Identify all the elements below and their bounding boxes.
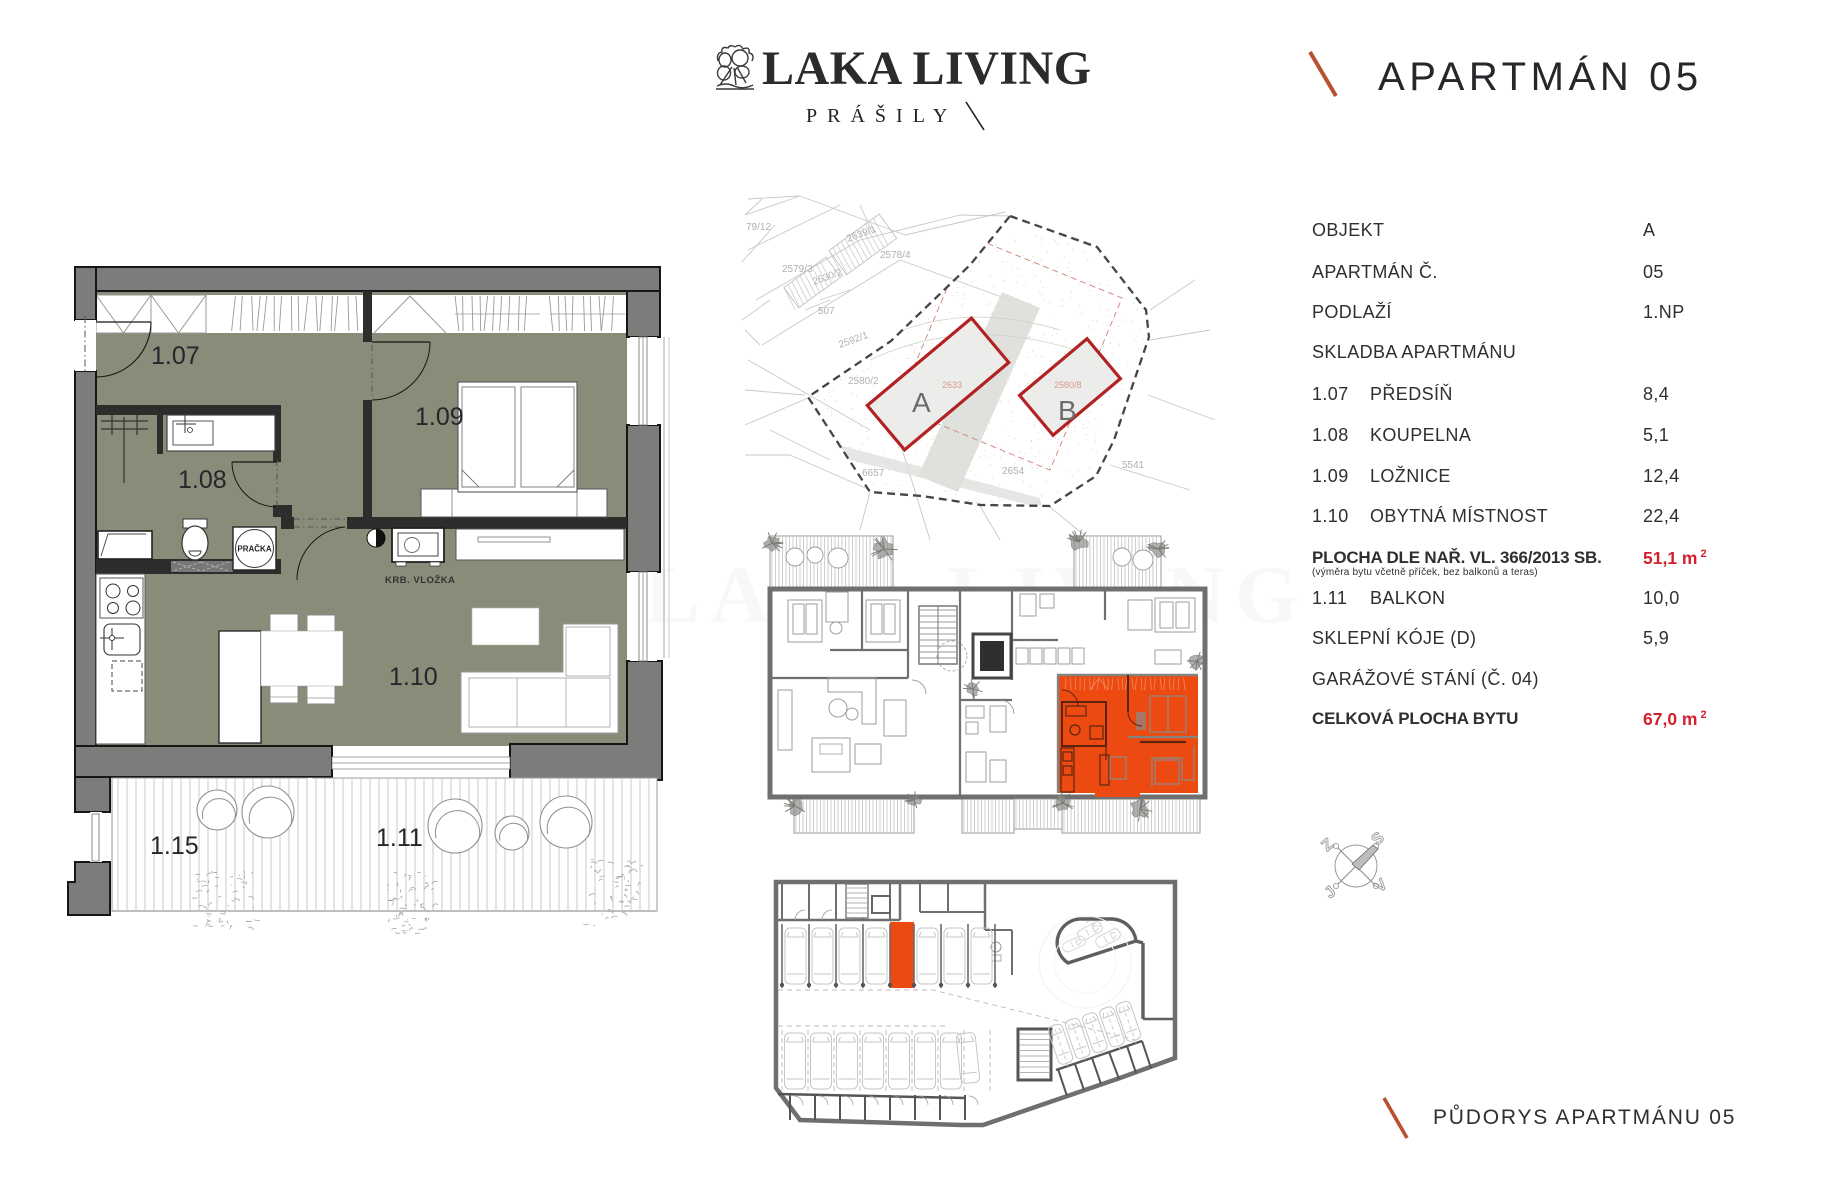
svg-text:79/12: 79/12 [746,222,771,233]
svg-text:A: A [912,387,931,418]
svg-text:2579/3: 2579/3 [782,264,813,275]
svg-text:B: B [1058,395,1077,426]
svg-text:1.15: 1.15 [150,832,199,860]
svg-text:V: V [1372,876,1391,896]
svg-text:2580/8: 2580/8 [1054,380,1082,390]
svg-text:5541: 5541 [1122,460,1145,471]
svg-text:1.07: 1.07 [151,342,200,370]
svg-text:2633: 2633 [942,380,962,390]
svg-text:PRAČKA: PRAČKA [237,545,271,554]
svg-text:1.10: 1.10 [389,663,438,691]
svg-text:2592/1: 2592/1 [837,330,870,351]
svg-text:1.09: 1.09 [415,403,464,431]
svg-text:KRB. VLOŽKA: KRB. VLOŽKA [385,574,455,586]
svg-text:1.08: 1.08 [178,466,227,494]
svg-text:507: 507 [818,306,835,317]
svg-text:2654: 2654 [1002,466,1025,477]
svg-text:1.11: 1.11 [376,824,423,852]
svg-text:2578/4: 2578/4 [880,250,911,261]
svg-text:6657: 6657 [862,468,885,479]
svg-text:2580/2: 2580/2 [848,376,879,387]
svg-text:2630/2: 2630/2 [811,267,844,288]
